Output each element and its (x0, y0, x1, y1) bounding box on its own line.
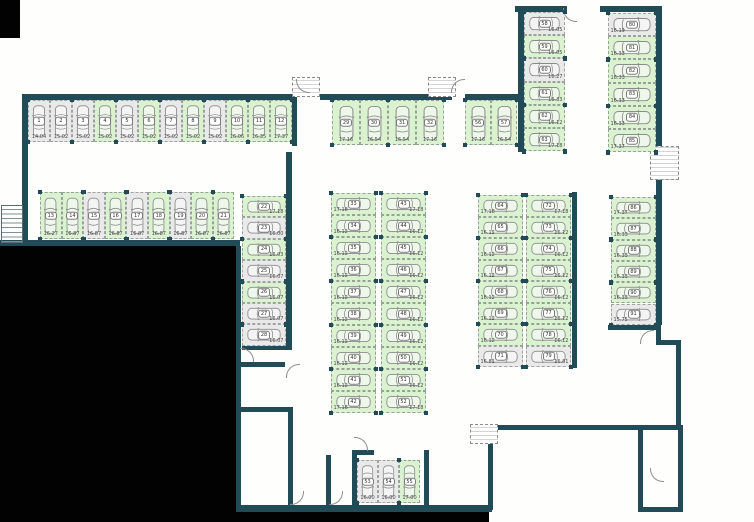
stall-number: 91 (628, 310, 640, 319)
stall-number: 89 (628, 267, 640, 276)
parking-stall-39[interactable]: 3916.12 (331, 325, 376, 347)
stall-number: 19 (174, 211, 186, 220)
stall-dimension-label: 17.18 (409, 406, 423, 412)
parking-stall-9[interactable]: 915.02 (204, 100, 226, 142)
parking-stall-62[interactable]: 6216.12 (524, 105, 565, 128)
stall-number: 48 (398, 310, 410, 319)
parking-stall-20[interactable]: 2016.87 (191, 192, 213, 239)
stall-number: 50 (398, 354, 410, 363)
column-pillar-icon (424, 235, 429, 240)
stall-dimension-label: 16.12 (554, 317, 568, 323)
stall-dimension-label: 17.37 (611, 145, 625, 151)
column-pillar-icon (329, 411, 334, 416)
stall-number: 43 (398, 200, 410, 209)
stall-dimension-label: 16.87 (84, 232, 104, 238)
door-swing-icon (290, 491, 304, 505)
stall-dimension-label: 16.35 (249, 135, 269, 141)
stall-number: 85 (626, 136, 638, 145)
column-pillar-icon (515, 143, 520, 148)
stall-dimension-label: 15.02 (117, 135, 137, 141)
stall-number: 52 (398, 398, 410, 407)
column-pillar-icon (609, 195, 614, 200)
parking-stall-91[interactable]: 9115.75 (611, 304, 656, 325)
column-pillar-icon (374, 191, 379, 196)
parking-stall-5[interactable]: 515.02 (116, 100, 138, 142)
parking-stall-30[interactable]: 3016.54 (360, 100, 388, 145)
stall-number: 34 (348, 222, 360, 231)
stall-dimension-label: 16.05 (548, 28, 562, 34)
column-pillar-icon (386, 143, 391, 148)
column-pillar-icon (379, 367, 384, 372)
wall-segment (242, 346, 288, 350)
stall-dimension-label: 16.12 (409, 230, 423, 236)
column-pillar-icon (70, 140, 75, 145)
parking-stall-40[interactable]: 4016.12 (331, 347, 376, 369)
wall-segment (638, 425, 683, 430)
parking-stall-88[interactable]: 8816.33 (611, 240, 656, 261)
outside-mask-region (0, 0, 20, 38)
parking-stall-2[interactable]: 215.02 (50, 100, 72, 142)
stall-dimension-label: 16.12 (481, 253, 495, 259)
parking-stall-28[interactable]: 2816.07 (242, 324, 286, 345)
stall-dimension-label: 16.12 (409, 252, 423, 258)
column-pillar-icon (355, 458, 360, 463)
parking-stall-65[interactable]: 6516.12 (478, 217, 523, 239)
column-pillar-icon (202, 98, 207, 103)
column-pillar-icon (654, 150, 659, 155)
column-pillar-icon (329, 191, 334, 196)
column-pillar-icon (569, 365, 574, 370)
wall-segment (286, 152, 292, 350)
parking-stall-69[interactable]: 6916.12 (478, 303, 523, 325)
column-pillar-icon (374, 323, 379, 328)
parking-stall-55[interactable]: 5517.00 (399, 460, 420, 503)
stall-number: 10 (231, 117, 243, 126)
parking-stall-46[interactable]: 4616.12 (381, 259, 426, 281)
stall-number: 84 (626, 113, 638, 122)
stall-dimension-label: 16.07 (269, 317, 283, 323)
stall-dimension-label: 16.87 (192, 232, 212, 238)
stall-number: 87 (628, 225, 640, 234)
column-pillar-icon (476, 193, 481, 198)
parking-stall-18[interactable]: 1816.87 (148, 192, 170, 239)
parking-stall-58[interactable]: 5816.05 (524, 12, 565, 35)
parking-stall-12[interactable]: 1217.37 (270, 100, 292, 142)
parking-stall-13[interactable]: 1316.27 (40, 192, 62, 239)
column-pillar-icon (374, 235, 379, 240)
column-pillar-icon (290, 98, 295, 103)
parking-stall-82[interactable]: 8216.33 (608, 59, 656, 82)
column-pillar-icon (158, 98, 163, 103)
column-pillar-icon (524, 279, 529, 284)
parking-stall-34[interactable]: 3416.12 (331, 215, 376, 237)
column-pillar-icon (38, 190, 43, 195)
column-pillar-icon (211, 190, 216, 195)
parking-stall-72[interactable]: 7217.18 (526, 195, 571, 217)
parking-stall-68[interactable]: 6816.12 (478, 281, 523, 303)
stall-dimension-label: 17.18 (548, 144, 562, 150)
stall-number: 20 (196, 211, 208, 220)
stall-dimension-label: 17.16 (417, 138, 443, 144)
wall-segment (237, 362, 285, 367)
column-pillar-icon (424, 411, 429, 416)
vent-shaft-icon (470, 424, 498, 444)
parking-stall-48[interactable]: 4816.12 (381, 303, 426, 325)
stall-dimension-label: 16.12 (554, 339, 568, 345)
stall-number: 31 (396, 118, 408, 127)
stall-dimension-label: 16.12 (334, 296, 348, 302)
stall-dimension-label: 17.37 (271, 135, 291, 141)
parking-stall-6[interactable]: 615.02 (138, 100, 160, 142)
stall-number: 7 (165, 117, 177, 126)
column-pillar-icon (379, 323, 384, 328)
parking-stall-77[interactable]: 7716.12 (526, 303, 571, 325)
column-pillar-icon (563, 103, 568, 108)
parking-stall-32[interactable]: 3217.16 (416, 100, 444, 145)
column-pillar-icon (114, 98, 119, 103)
stall-dimension-label: 17.18 (334, 208, 348, 214)
column-pillar-icon (569, 193, 574, 198)
stall-number: 81 (626, 44, 638, 53)
column-pillar-icon (463, 98, 468, 103)
parking-stall-83[interactable]: 8316.33 (608, 83, 656, 106)
column-pillar-icon (355, 501, 360, 506)
stall-dimension-label: 16.33 (614, 275, 628, 281)
parking-stall-19[interactable]: 1916.87 (170, 192, 192, 239)
parking-stall-60[interactable]: 6016.27 (524, 58, 565, 81)
stall-number: 5 (121, 117, 133, 126)
stall-number: 65 (495, 223, 507, 232)
stall-dimension-label: 17.18 (334, 406, 348, 412)
stall-dimension-label: 16.81 (481, 360, 495, 366)
column-pillar-icon (654, 323, 659, 328)
column-pillar-icon (424, 367, 429, 372)
parking-stall-25[interactable]: 2516.07 (242, 260, 286, 281)
column-pillar-icon (167, 237, 172, 242)
column-pillar-icon (569, 236, 574, 241)
stall-dimension-label: 16.07 (269, 296, 283, 302)
parking-stall-16[interactable]: 1616.87 (105, 192, 127, 239)
stall-dimension-label: 16.33 (614, 254, 628, 260)
column-pillar-icon (290, 140, 295, 145)
parking-stall-64[interactable]: 6417.18 (478, 195, 523, 217)
column-pillar-icon (515, 98, 520, 103)
parking-stall-31[interactable]: 3116.54 (388, 100, 416, 145)
wall-segment (638, 425, 643, 512)
stall-dimension-label: 17.16 (466, 138, 490, 144)
column-pillar-icon (524, 365, 529, 370)
parking-stall-15[interactable]: 1516.87 (83, 192, 105, 239)
column-pillar-icon (114, 140, 119, 145)
parking-stall-86[interactable]: 8617.37 (611, 197, 656, 218)
door-swing-icon (640, 330, 654, 344)
parking-stall-61[interactable]: 6116.33 (524, 82, 565, 105)
stall-number: 18 (153, 211, 165, 220)
parking-stall-14[interactable]: 1416.87 (62, 192, 84, 239)
stall-number: 44 (398, 222, 410, 231)
parking-stall-74[interactable]: 7416.12 (526, 238, 571, 260)
column-pillar-icon (329, 235, 334, 240)
stall-number: 13 (45, 211, 57, 220)
parking-stall-11[interactable]: 1116.35 (248, 100, 270, 142)
stall-number: 76 (543, 288, 555, 297)
column-pillar-icon (524, 236, 529, 241)
stall-dimension-label: 16.33 (611, 122, 625, 128)
parking-stall-54[interactable]: 5416.00 (378, 460, 399, 503)
stall-number: 66 (495, 245, 507, 254)
stall-dimension-label: 16.00 (358, 496, 377, 502)
stall-number: 73 (543, 223, 555, 232)
column-pillar-icon (240, 279, 245, 284)
column-pillar-icon (26, 140, 31, 145)
stall-dimension-label: 16.87 (214, 232, 234, 238)
column-pillar-icon (524, 322, 529, 327)
column-pillar-icon (330, 143, 335, 148)
column-pillar-icon (606, 57, 611, 62)
column-pillar-icon (476, 322, 481, 327)
stall-number: 32 (424, 118, 436, 127)
parking-stall-10[interactable]: 1016.06 (226, 100, 248, 142)
parking-stall-78[interactable]: 7816.12 (526, 324, 571, 346)
parking-stall-49[interactable]: 4916.12 (381, 325, 426, 347)
parking-stall-50[interactable]: 5016.12 (381, 347, 426, 369)
parking-stall-76[interactable]: 7616.12 (526, 281, 571, 303)
stall-dimension-label: 17.18 (269, 210, 283, 216)
parking-stall-57[interactable]: 5716.54 (491, 100, 517, 145)
parking-stall-66[interactable]: 6616.12 (478, 238, 523, 260)
parking-stall-79[interactable]: 7916.81 (526, 346, 571, 368)
column-pillar-icon (424, 279, 429, 284)
parking-stall-47[interactable]: 4716.12 (381, 281, 426, 303)
stall-dimension-label: 16.27 (41, 232, 61, 238)
stall-dimension-label: 15.02 (51, 135, 71, 141)
column-pillar-icon (442, 143, 447, 148)
column-pillar-icon (70, 98, 75, 103)
parking-stall-23[interactable]: 2316.00 (242, 217, 286, 238)
stall-number: 75 (543, 266, 555, 275)
column-pillar-icon (374, 279, 379, 284)
parking-stall-73[interactable]: 7316.12 (526, 217, 571, 239)
column-pillar-icon (240, 322, 245, 327)
column-pillar-icon (476, 279, 481, 284)
parking-stall-38[interactable]: 3816.12 (331, 303, 376, 325)
parking-stall-45[interactable]: 4516.12 (381, 237, 426, 259)
column-pillar-icon (124, 190, 129, 195)
column-pillar-icon (246, 98, 251, 103)
stall-number: 14 (66, 211, 78, 220)
stall-dimension-label: 16.12 (481, 317, 495, 323)
parking-stall-36[interactable]: 3616.12 (331, 259, 376, 281)
wall-segment (488, 425, 640, 430)
stall-number: 88 (628, 246, 640, 255)
parking-stall-35[interactable]: 3516.12 (331, 237, 376, 259)
parking-stall-71[interactable]: 7116.81 (478, 346, 523, 368)
stall-number: 12 (275, 117, 287, 126)
door-swing-icon (286, 364, 300, 378)
column-pillar-icon (330, 98, 335, 103)
parking-stall-17[interactable]: 1716.87 (126, 192, 148, 239)
parking-stall-56[interactable]: 5617.16 (465, 100, 491, 145)
parking-stall-87[interactable]: 8716.33 (611, 218, 656, 239)
stall-dimension-label: 16.12 (548, 121, 562, 127)
stall-dimension-label: 16.05 (548, 51, 562, 57)
parking-stall-4[interactable]: 415.02 (94, 100, 116, 142)
parking-stall-90[interactable]: 9016.33 (611, 282, 656, 303)
stall-dimension-label: 16.27 (548, 75, 562, 81)
stall-dimension-label: 15.02 (73, 135, 93, 141)
column-pillar-icon (284, 279, 289, 284)
stall-dimension-label: 16.00 (269, 232, 283, 238)
parking-stall-44[interactable]: 4416.12 (381, 215, 426, 237)
column-pillar-icon (329, 323, 334, 328)
parking-stall-7[interactable]: 715.02 (160, 100, 182, 142)
stall-dimension-label: 16.12 (334, 230, 348, 236)
stall-dimension-label: 16.12 (409, 384, 423, 390)
parking-stall-85[interactable]: 8517.37 (608, 129, 656, 152)
parking-stall-26[interactable]: 2616.07 (242, 282, 286, 303)
parking-stall-22[interactable]: 2217.18 (242, 196, 286, 217)
column-pillar-icon (606, 150, 611, 155)
stall-number: 16 (110, 211, 122, 220)
column-pillar-icon (26, 98, 31, 103)
parking-stall-59[interactable]: 5916.05 (524, 35, 565, 58)
stall-number: 17 (131, 211, 143, 220)
stall-number: 29 (340, 118, 352, 127)
parking-stall-42[interactable]: 4217.18 (331, 391, 376, 413)
stall-dimension-label: 16.87 (63, 232, 83, 238)
stall-dimension-label: 17.00 (400, 496, 419, 502)
stall-dimension-label: 16.12 (554, 253, 568, 259)
stall-number: 49 (398, 332, 410, 341)
parking-stall-24[interactable]: 2416.03 (242, 239, 286, 260)
parking-stall-81[interactable]: 8116.33 (608, 36, 656, 59)
wall-segment (236, 505, 492, 512)
column-pillar-icon (374, 367, 379, 372)
stall-number: 70 (495, 331, 507, 340)
column-pillar-icon (524, 193, 529, 198)
column-pillar-icon (240, 194, 245, 199)
stall-number: 54 (383, 477, 395, 486)
column-pillar-icon (397, 501, 402, 506)
stall-number: 57 (498, 118, 510, 127)
stall-dimension-label: 16.33 (548, 98, 562, 104)
stall-number: 36 (348, 266, 360, 275)
stall-number: 15 (88, 211, 100, 220)
stall-number: 67 (495, 266, 507, 275)
stall-dimension-label: 14.04 (29, 135, 49, 141)
stall-number: 69 (495, 309, 507, 318)
parking-stall-84[interactable]: 8416.33 (608, 106, 656, 129)
stall-number: 45 (398, 244, 410, 253)
stall-dimension-label: 16.12 (554, 231, 568, 237)
stall-number: 55 (404, 477, 416, 486)
stall-dimension-label: 16.07 (269, 275, 283, 281)
stall-dimension-label: 17.18 (481, 210, 495, 216)
wall-segment (237, 407, 293, 412)
parking-stall-53[interactable]: 5316.00 (357, 460, 378, 503)
stall-dimension-label: 16.12 (409, 318, 423, 324)
column-pillar-icon (654, 11, 659, 16)
stall-number: 83 (626, 90, 638, 99)
column-pillar-icon (609, 323, 614, 328)
column-pillar-icon (522, 56, 527, 61)
stall-dimension-label: 16.00 (379, 496, 398, 502)
column-pillar-icon (654, 280, 659, 285)
parking-stall-75[interactable]: 7516.12 (526, 260, 571, 282)
parking-stall-21[interactable]: 2116.87 (213, 192, 235, 239)
stall-number: 8 (187, 117, 199, 126)
door-swing-icon (329, 491, 343, 505)
column-pillar-icon (124, 237, 129, 242)
column-pillar-icon (379, 235, 384, 240)
parking-stall-8[interactable]: 815.02 (182, 100, 204, 142)
parking-stall-52[interactable]: 5217.18 (381, 391, 426, 413)
stall-dimension-label: 16.12 (334, 340, 348, 346)
parking-stall-41[interactable]: 4116.12 (331, 369, 376, 391)
stall-number: 71 (495, 352, 507, 361)
column-pillar-icon (379, 411, 384, 416)
column-pillar-icon (167, 190, 172, 195)
stall-dimension-label: 17.16 (333, 138, 359, 144)
stall-dimension-label: 17.18 (409, 208, 423, 214)
column-pillar-icon (284, 322, 289, 327)
parking-stall-67[interactable]: 6716.12 (478, 260, 523, 282)
stall-dimension-label: 16.87 (106, 232, 126, 238)
parking-stall-70[interactable]: 7016.12 (478, 324, 523, 346)
stall-number: 46 (398, 266, 410, 275)
parking-stall-29[interactable]: 2917.16 (332, 100, 360, 145)
door-swing-icon (240, 348, 254, 362)
stall-number: 74 (543, 245, 555, 254)
stall-dimension-label: 15.02 (183, 135, 203, 141)
parking-stall-1[interactable]: 114.04 (28, 100, 50, 142)
column-pillar-icon (654, 195, 659, 200)
column-pillar-icon (654, 237, 659, 242)
parking-stall-27[interactable]: 2716.07 (242, 303, 286, 324)
stall-dimension-label: 16.12 (409, 274, 423, 280)
stall-dimension-label: 16.87 (171, 232, 191, 238)
parking-stall-63[interactable]: 6317.18 (524, 128, 565, 151)
stall-number: 38 (348, 310, 360, 319)
stall-dimension-label: 16.87 (149, 232, 169, 238)
parking-stall-3[interactable]: 315.02 (72, 100, 94, 142)
column-pillar-icon (81, 237, 86, 242)
wall-segment (656, 178, 662, 325)
parking-stall-89[interactable]: 8916.33 (611, 261, 656, 282)
stall-dimension-label: 16.33 (611, 52, 625, 58)
outside-mask-region (0, 246, 236, 522)
parking-stall-80[interactable]: 8016.19 (608, 13, 656, 36)
column-pillar-icon (284, 194, 289, 199)
stall-number: 30 (368, 118, 380, 127)
parking-stall-51[interactable]: 5116.12 (381, 369, 426, 391)
stall-number: 60 (539, 66, 551, 75)
stall-dimension-label: 16.12 (481, 231, 495, 237)
parking-stall-33[interactable]: 3317.18 (331, 193, 376, 215)
column-pillar-icon (442, 98, 447, 103)
column-pillar-icon (563, 56, 568, 61)
stall-dimension-label: 16.12 (554, 274, 568, 280)
stall-number: 9 (209, 117, 221, 126)
stall-number: 86 (628, 203, 640, 212)
column-pillar-icon (38, 237, 43, 242)
column-pillar-icon (397, 458, 402, 463)
parking-stall-43[interactable]: 4317.18 (381, 193, 426, 215)
stall-dimension-label: 16.33 (614, 233, 628, 239)
column-pillar-icon (654, 104, 659, 109)
parking-stall-37[interactable]: 3716.12 (331, 281, 376, 303)
stall-dimension-label: 16.12 (334, 362, 348, 368)
